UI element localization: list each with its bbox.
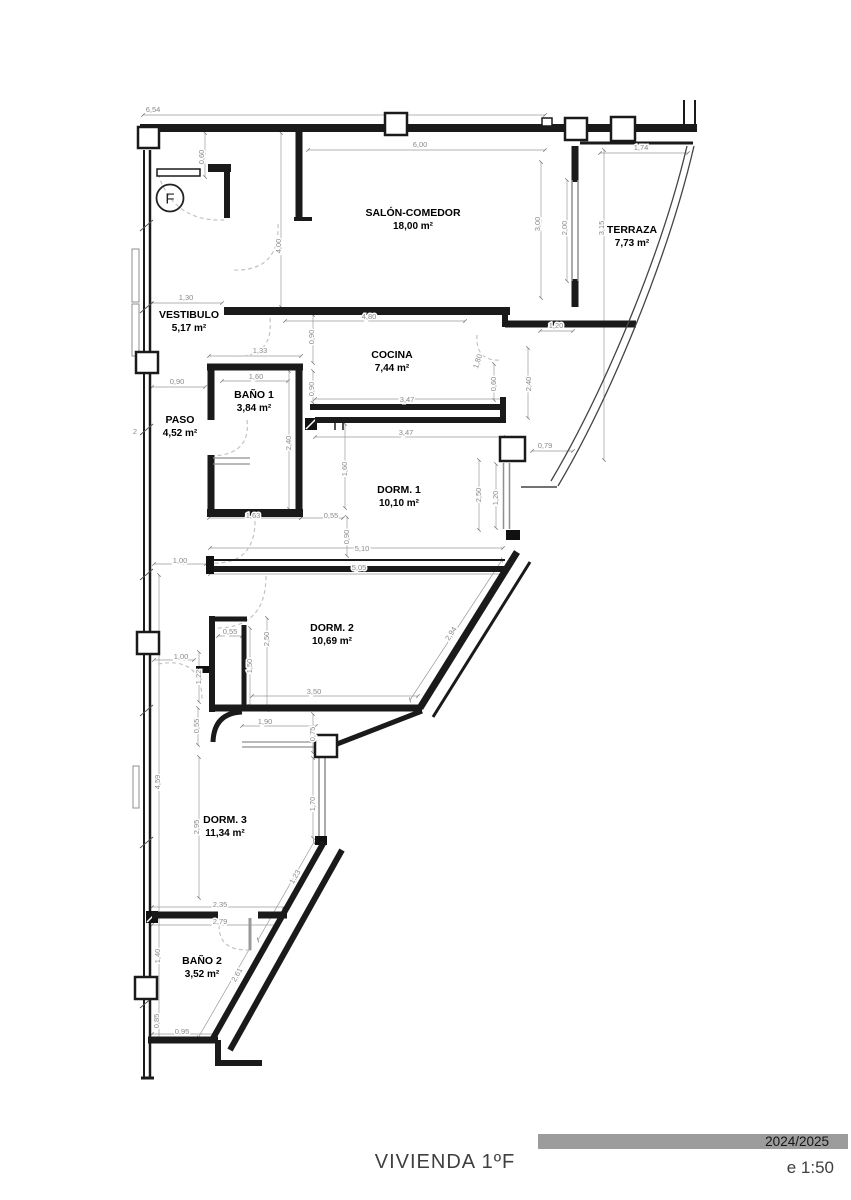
dimension-label: 2,40	[524, 377, 533, 392]
room-area-label: 11,34 m²	[205, 828, 245, 839]
room-area-label: 3,52 m²	[185, 969, 220, 980]
dimension-label: 0,75	[308, 727, 317, 742]
dimension-label: 1,22	[194, 670, 203, 685]
room-area-label: 7,73 m²	[615, 238, 650, 249]
dimension-label: 0,90	[307, 330, 316, 345]
dimension-label: 2	[133, 427, 137, 436]
dimension-label: 0,90	[307, 382, 316, 397]
dimension-label: 1,60	[340, 462, 349, 477]
room-area-label: 3,84 m²	[237, 403, 272, 414]
flat-circle: F	[157, 185, 184, 212]
floor-plan-drawing: F SALÓN-COMEDOR18,00 m²TERRAZA7,73 m²VES…	[0, 0, 851, 1200]
dimension-label: 3,47	[400, 395, 415, 404]
dimension-label: 2,94	[443, 625, 459, 642]
dimension-label: 1,50	[245, 659, 254, 674]
dimension-label: 4,00	[274, 239, 283, 254]
room-area-label: 10,69 m²	[312, 636, 353, 647]
room-name-label: DORM. 1	[377, 484, 421, 496]
room-name-label: BAÑO 2	[182, 954, 222, 967]
flat-letter: F	[165, 191, 174, 208]
dimension-label: 1,40	[153, 949, 162, 964]
dimension-label: 2,35	[213, 900, 228, 909]
dimension-label: 0,79	[538, 441, 553, 450]
room-name-label: BAÑO 1	[234, 388, 274, 401]
room-name-label: SALÓN-COMEDOR	[365, 206, 460, 219]
dimension-label: 1,20	[491, 491, 500, 506]
dimension-label: 0,90	[342, 530, 351, 545]
room-area-label: 7,44 m²	[375, 363, 410, 374]
dimension-label: 1,90	[258, 717, 273, 726]
room-name-label: DORM. 2	[310, 622, 354, 634]
dimension-label: 1,00	[173, 556, 188, 565]
dimension-label: 2,79	[213, 917, 228, 926]
dimension-label: 0,85	[152, 1014, 161, 1029]
dimension-label: 5,05	[352, 563, 367, 572]
dimension-label: 4,59	[153, 775, 162, 790]
dimension-label: 1,33	[253, 346, 268, 355]
dimension-label: 1,70	[308, 797, 317, 812]
dimension-label: 2,50	[474, 488, 483, 503]
dimension-label: 1,74	[634, 143, 649, 152]
dimension-label: 0,55	[223, 627, 238, 636]
dimension-label: 3,47	[399, 428, 414, 437]
dimension-label: 0,90	[170, 377, 185, 386]
dimension-label: 4,80	[362, 312, 377, 321]
room-name-label: COCINA	[371, 349, 413, 361]
dimension-label: 0,55	[324, 511, 339, 520]
room-name-label: TERRAZA	[607, 224, 658, 236]
dimension-label: 1,30	[179, 293, 194, 302]
dimension-label: 2,50	[262, 632, 271, 647]
room-area-label: 10,10 m²	[379, 498, 420, 509]
plan-title: VIVIENDA 1ºF	[375, 1151, 515, 1173]
dimension-label: 3,00	[533, 217, 542, 232]
dimension-label: 1,63	[246, 511, 261, 520]
period-label: 2024/2025	[765, 1134, 829, 1149]
dimension-label: 2,95	[192, 820, 201, 835]
dimension-label: 3,50	[307, 687, 322, 696]
dimension-label: 1,00	[174, 652, 189, 661]
dimension-label: 2,00	[560, 221, 569, 236]
floor-plan-sheet: F SALÓN-COMEDOR18,00 m²TERRAZA7,73 m²VES…	[0, 0, 851, 1200]
dimension-label: 0,55	[192, 719, 201, 734]
walls	[132, 100, 697, 1078]
dimension-label: 1,80	[471, 353, 484, 370]
dimension-label: 2,40	[284, 436, 293, 451]
dimension-label: 1,20	[549, 321, 564, 330]
dimension-label: 6,00	[413, 140, 428, 149]
dimension-label: 3,15	[597, 221, 606, 236]
dimension-label: 0,60	[489, 377, 498, 392]
room-area-label: 18,00 m²	[393, 221, 434, 232]
dimension-label: 1,60	[249, 372, 264, 381]
dimension-label: 6,54	[146, 105, 161, 114]
scale-label: e 1:50	[787, 1158, 834, 1177]
dimension-label: 5,10	[355, 544, 370, 553]
room-area-label: 4,52 m²	[163, 428, 198, 439]
room-name-label: DORM. 3	[203, 814, 247, 826]
room-name-label: PASO	[166, 414, 195, 426]
room-name-label: VESTIBULO	[159, 309, 219, 321]
dimension-label: 0,95	[175, 1027, 190, 1036]
room-area-label: 5,17 m²	[172, 323, 207, 334]
dimension-label: 0,60	[197, 150, 206, 165]
